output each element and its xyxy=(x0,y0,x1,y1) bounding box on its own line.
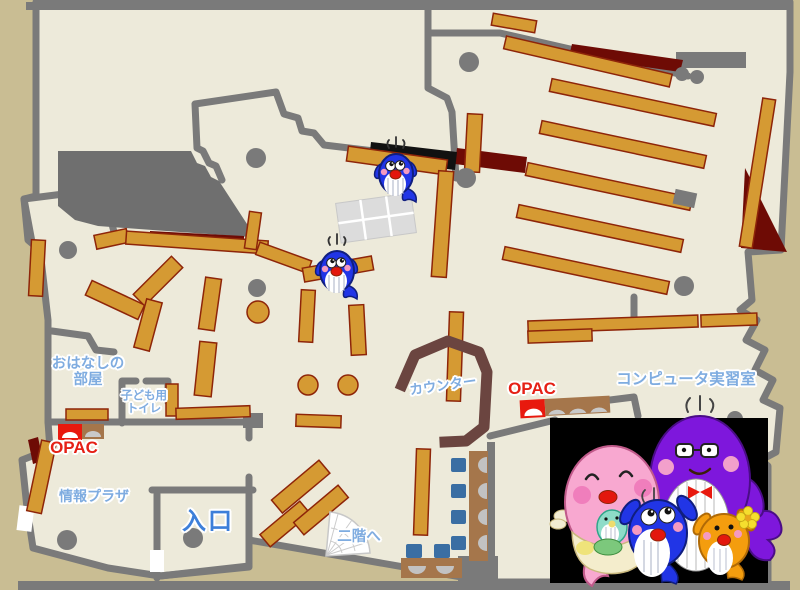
label-opac-left: OPAC xyxy=(38,438,110,457)
label-computer-room: コンピュータ実習室 xyxy=(604,371,768,388)
kids-toilet-line1: 子ども用 xyxy=(121,390,167,402)
label-kids-toilet: 子ども用 トイレ xyxy=(105,390,183,416)
whale-family-illustration xyxy=(550,396,782,586)
ohanashi-line1: おはなしの xyxy=(52,356,125,372)
label-info-plaza: 情報プラザ xyxy=(42,489,146,505)
label-to-second-floor: 二階へ xyxy=(318,529,400,545)
label-entrance: 入口 xyxy=(166,509,250,536)
kids-toilet-line2: トイレ xyxy=(127,403,162,415)
label-ohanashi-room: おはなしの 部屋 xyxy=(40,356,136,388)
library-floor-map: おはなしの 部屋 子ども用 トイレ OPAC 情報プラザ 入口 二階へ カウンタ… xyxy=(0,0,800,590)
ohanashi-line2: 部屋 xyxy=(74,372,103,388)
label-opac-right: OPAC xyxy=(496,379,568,398)
